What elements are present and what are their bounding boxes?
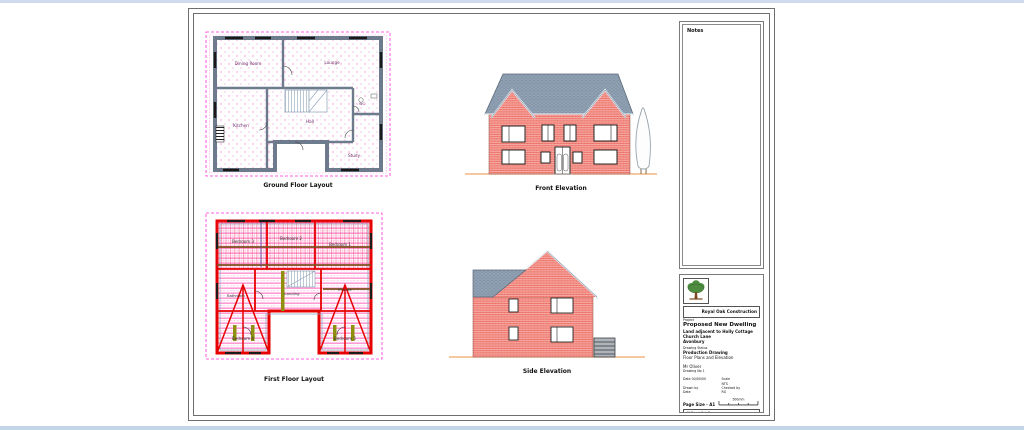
scale-bar-label: 500mm xyxy=(733,397,745,401)
room-label-lounge: Lounge xyxy=(324,60,340,65)
title-block: Royal Oak Construction Project Proposed … xyxy=(679,274,764,413)
oak-tree-icon xyxy=(684,279,708,303)
room-label-dining: Dining Room xyxy=(235,61,262,66)
room-label-bed5: Bedroom 5 xyxy=(334,336,356,341)
drawn-by-value: Date xyxy=(683,390,722,394)
side-elevation-drawing xyxy=(447,241,647,367)
site-line-1: Land adjacent to Holly Cottage xyxy=(683,329,760,334)
front-elevation-drawing xyxy=(461,54,661,189)
side-elevation-caption: Side Elevation xyxy=(447,368,647,375)
ground-floor-caption: Ground Floor Layout xyxy=(203,182,393,189)
checked-by-value: RG xyxy=(722,390,761,394)
scale-bar: 500mm xyxy=(717,397,760,407)
room-label-study: Study xyxy=(348,153,361,158)
room-label-hall: Hall xyxy=(306,119,314,124)
page-size: Page Size - A1 xyxy=(683,402,715,407)
company-address: 40 Burnt Oak Barn Oakley, Staffordshire … xyxy=(683,409,760,413)
first-floor-caption: First Floor Layout xyxy=(203,376,385,383)
window-top-edge xyxy=(0,0,1024,3)
front-elevation-caption: Front Elevation xyxy=(461,185,661,192)
room-label-kitchen: Kitchen xyxy=(233,123,249,128)
room-label-bed4: Bedroom 4 xyxy=(232,336,254,341)
address-line-1: 40 Burnt Oak Barn xyxy=(686,411,757,413)
drawing-sheet: Dining Room Lounge Kitchen Hall Study WC… xyxy=(188,8,775,421)
notes-panel: Notes xyxy=(679,21,764,269)
notes-title: Notes xyxy=(687,28,760,34)
room-label-landing: Landing xyxy=(284,291,300,296)
company-name: Royal Oak Construction xyxy=(683,306,760,318)
first-floor-plan: Bedroom 3 Bedroom 2 Bedroom 1 Bathroom L… xyxy=(203,207,385,373)
window-bottom-edge xyxy=(0,426,1024,430)
room-label-bed2: Bedroom 2 xyxy=(280,236,302,241)
tree-icon xyxy=(636,108,650,169)
room-label-bed3: Bedroom 3 xyxy=(232,239,254,244)
room-label-bed1: Bedroom 1 xyxy=(329,242,351,247)
room-label-wc: WC xyxy=(359,102,365,106)
ground-floor-plan: Dining Room Lounge Kitchen Hall Study WC xyxy=(203,30,393,180)
room-label-bathroom: Bathroom xyxy=(227,294,245,298)
project-name: Proposed New Dwelling xyxy=(683,322,760,329)
field-row: Date RG xyxy=(683,390,760,394)
notes-panel-inner: Notes xyxy=(682,24,761,266)
room-label-ensuite: Ensuite xyxy=(338,288,352,292)
company-logo xyxy=(683,278,709,304)
